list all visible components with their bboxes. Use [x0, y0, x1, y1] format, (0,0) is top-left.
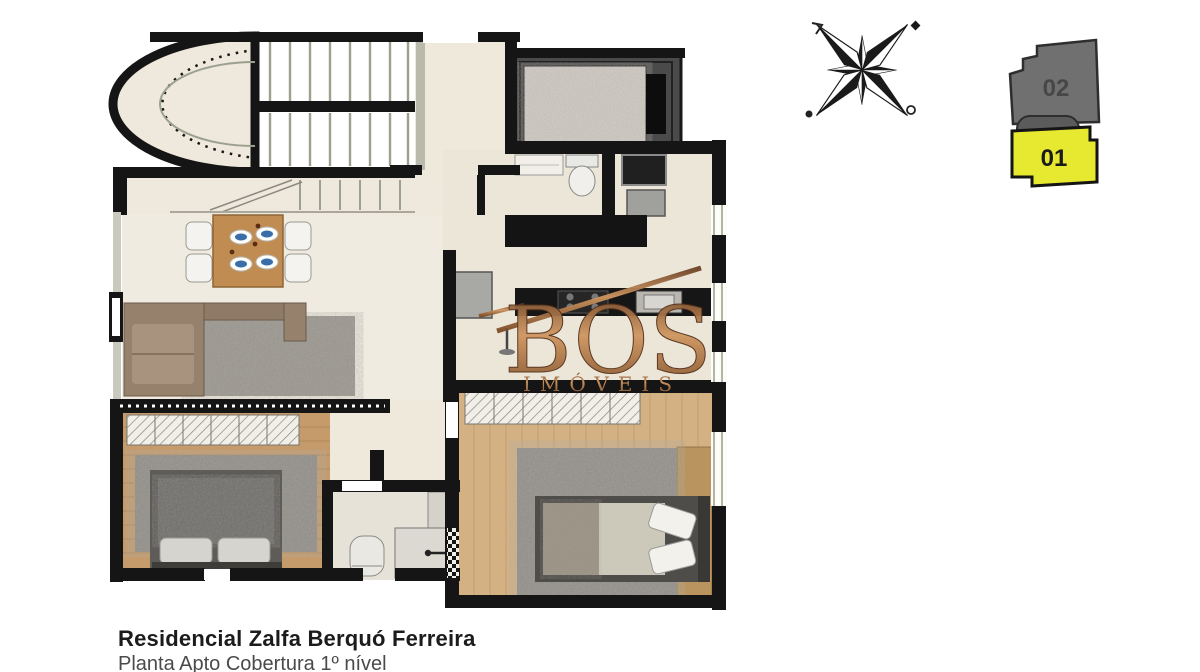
- chair: [186, 222, 212, 250]
- kitchen-island-counter: [505, 215, 647, 247]
- wardrobe-2: [465, 392, 640, 424]
- door-opening: [204, 569, 230, 580]
- caption-title: Residencial Zalfa Berquó Ferreira: [118, 626, 476, 652]
- caption-subtitle: Planta Apto Cobertura 1º nível: [118, 653, 476, 672]
- unit-02-label: 02: [1043, 75, 1070, 102]
- appliance: [622, 155, 666, 185]
- caption: Residencial Zalfa Berquó Ferreira Planta…: [118, 626, 476, 672]
- compass-sw-mark: [806, 111, 813, 118]
- bed-2: [535, 496, 710, 582]
- unit-01-label: 01: [1041, 145, 1068, 172]
- appliance: [627, 190, 665, 216]
- compass-ne-tip: [911, 21, 921, 31]
- chair: [285, 222, 311, 250]
- floor-plan: BOS IMÓVEIS: [105, 25, 750, 620]
- elevator-shaft: [513, 56, 681, 152]
- living-window: [112, 298, 120, 336]
- floor-plan-page: BOS IMÓVEIS 02: [0, 0, 1200, 672]
- bed-1: [150, 470, 282, 571]
- unit-01: 01: [1012, 127, 1097, 186]
- headboard-2: [698, 496, 710, 582]
- bedroom2-door-opening: [446, 402, 458, 438]
- chair: [285, 254, 311, 282]
- unit-02: 02: [1010, 40, 1099, 124]
- service-area: [622, 155, 666, 216]
- stair-treads-upper: [270, 42, 408, 101]
- watermark-logo: BOS IMÓVEIS: [479, 268, 712, 396]
- watermark-subtitle-text: IMÓVEIS: [523, 371, 681, 396]
- compass-se-mark: [907, 106, 915, 114]
- wardrobe-1: [127, 415, 299, 445]
- bathroom-door-opening: [342, 481, 382, 491]
- pillow: [160, 538, 212, 564]
- living-rug: [190, 316, 355, 396]
- pillow: [218, 538, 270, 564]
- bedroom-1: [123, 415, 330, 571]
- compass-nw-mark: [812, 23, 822, 34]
- chair: [186, 254, 212, 282]
- compass-rose-icon: [800, 18, 925, 123]
- entry-door-opening: [423, 31, 478, 43]
- stair-treads-lower: [270, 113, 408, 166]
- unit-locator: 02 01: [995, 28, 1110, 200]
